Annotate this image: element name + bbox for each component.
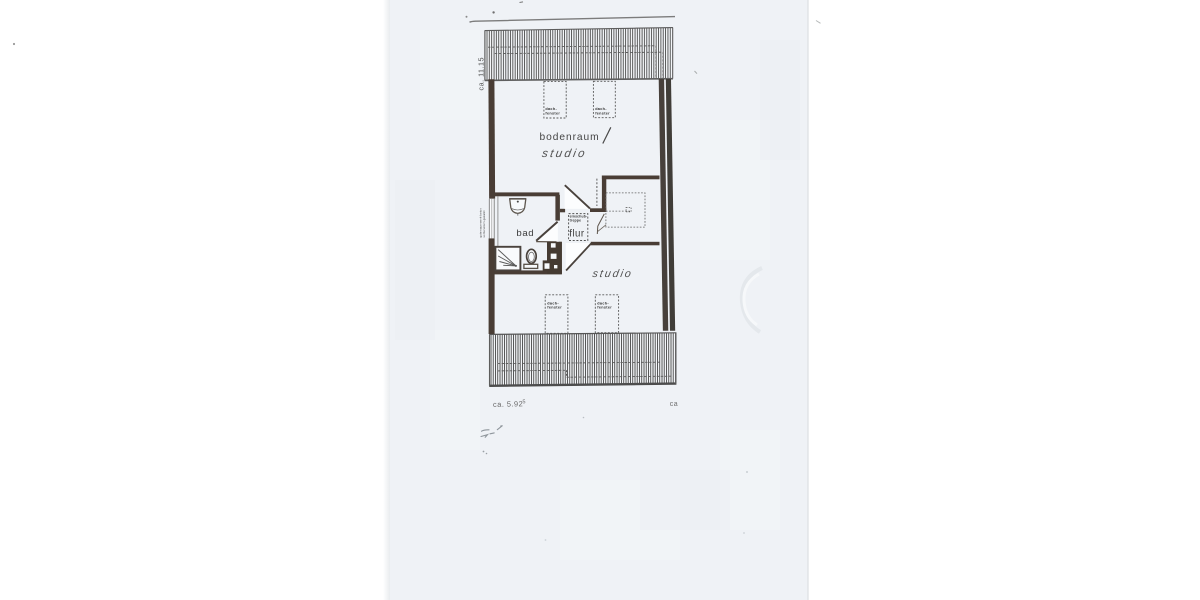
svg-text:bad: bad: [516, 228, 534, 239]
svg-text:studio: studio: [591, 268, 633, 280]
svg-text:treppe: treppe: [570, 218, 582, 222]
svg-text:fenster: fenster: [547, 305, 562, 309]
svg-text:bodenraum: bodenraum: [540, 132, 600, 143]
svg-text:ca. 11.15: ca. 11.15: [477, 57, 486, 91]
svg-text:fenster: fenster: [597, 305, 612, 309]
svg-text:ca: ca: [670, 401, 678, 408]
svg-text:ca. 5.92: ca. 5.92: [493, 399, 524, 409]
svg-text:vorberwisch-gekalkt: vorberwisch-gekalkt: [482, 210, 486, 237]
svg-text:5: 5: [522, 399, 525, 405]
svg-text:fenster: fenster: [595, 111, 610, 115]
svg-text:studio: studio: [541, 147, 588, 160]
svg-text:flur: flur: [569, 228, 585, 239]
svg-text:fenster: fenster: [545, 111, 560, 115]
